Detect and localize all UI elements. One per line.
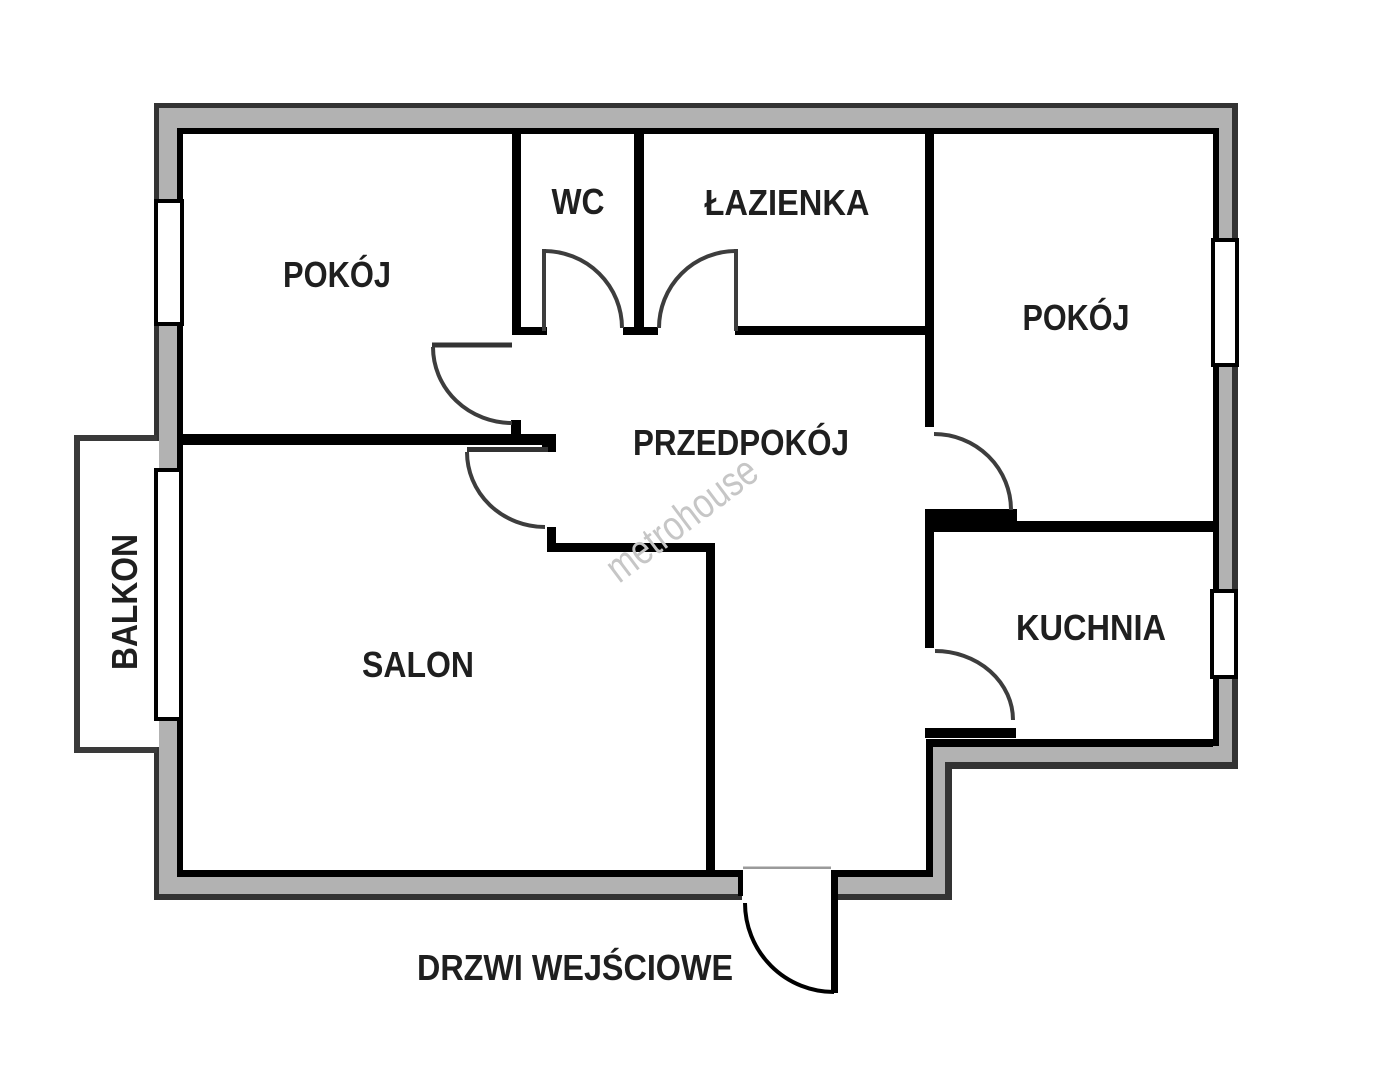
svg-text:SALON: SALON	[362, 644, 474, 685]
svg-text:ŁAZIENKA: ŁAZIENKA	[705, 182, 870, 223]
svg-text:POKÓJ: POKÓJ	[283, 253, 391, 295]
svg-text:WC: WC	[552, 181, 605, 222]
svg-text:BALKON: BALKON	[104, 534, 145, 670]
svg-text:POKÓJ: POKÓJ	[1023, 296, 1130, 338]
svg-text:DRZWI WEJŚCIOWE: DRZWI WEJŚCIOWE	[417, 946, 733, 988]
svg-text:KUCHNIA: KUCHNIA	[1016, 607, 1166, 648]
